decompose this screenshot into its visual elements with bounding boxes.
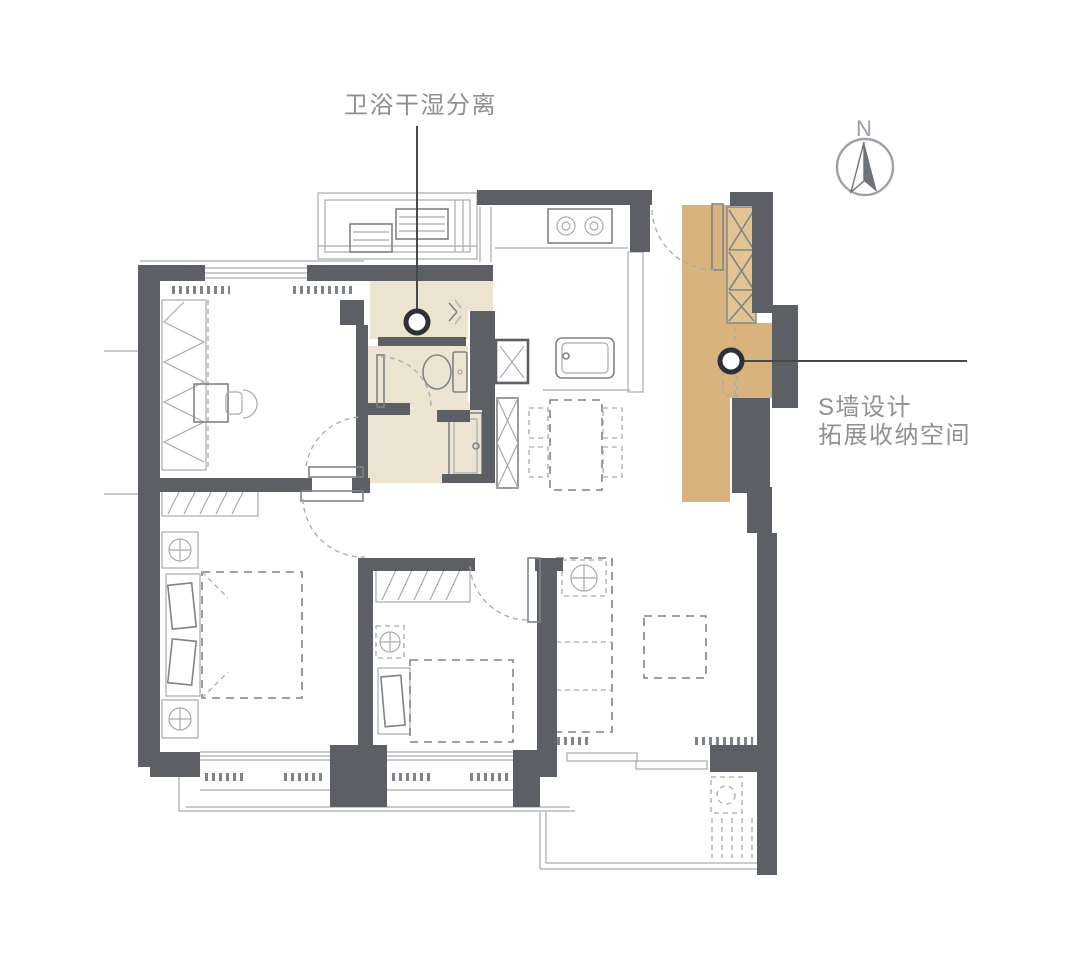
study-door-swing: [306, 417, 361, 466]
floor-plan-drawing: [0, 0, 1080, 971]
ac-unit-icon: [350, 224, 392, 252]
faucet-icon: [563, 353, 569, 359]
compass-north-label: N: [851, 116, 877, 142]
compass-north-icon: [837, 139, 893, 195]
living-room-furniture: [556, 558, 706, 732]
storage-wall-annotation-label: S墙设计 拓展收纳空间: [818, 394, 971, 450]
storage-callout-marker: [720, 350, 742, 372]
dining-table: [550, 400, 602, 490]
storage-annotation-line2: 拓展收纳空间: [818, 422, 971, 450]
study-door-leaf: [309, 467, 363, 477]
second-bedroom-furniture: [376, 568, 513, 742]
storage-annotation-line1: S墙设计: [818, 394, 971, 422]
bedroom2-door-swing: [470, 566, 528, 620]
cabinet: [497, 398, 518, 488]
washer-drum-icon: [717, 786, 735, 804]
bathroom-annotation-label: 卫浴干湿分离: [344, 92, 497, 120]
floor-plan-page: 卫浴干湿分离 S墙设计 拓展收纳空间 N: [0, 0, 1080, 971]
sliding-door: [567, 753, 637, 761]
bed: [202, 572, 302, 698]
equipment-platform: [318, 193, 477, 259]
study-furniture: [162, 300, 257, 470]
chair: [529, 408, 548, 438]
chair: [603, 447, 622, 477]
coffee-table: [644, 616, 706, 678]
bathroom-callout-marker: [406, 311, 428, 333]
headboard: [166, 574, 200, 696]
washing-machine: [711, 777, 742, 813]
pillow: [168, 583, 196, 629]
dining-furniture: [497, 398, 622, 490]
bed: [410, 660, 513, 742]
pillow: [381, 675, 405, 727]
desk: [194, 384, 228, 422]
radiator: [162, 488, 258, 516]
master-bedroom-furniture: [162, 488, 302, 738]
sliding-door: [636, 761, 707, 769]
burner-icon: [585, 217, 603, 235]
master-door-swing: [303, 499, 365, 557]
kitchen-fixtures: [480, 207, 643, 392]
chair: [603, 408, 622, 438]
burner-icon: [557, 217, 575, 235]
pillow: [168, 639, 196, 685]
radiator: [376, 568, 470, 602]
chair: [529, 447, 548, 477]
